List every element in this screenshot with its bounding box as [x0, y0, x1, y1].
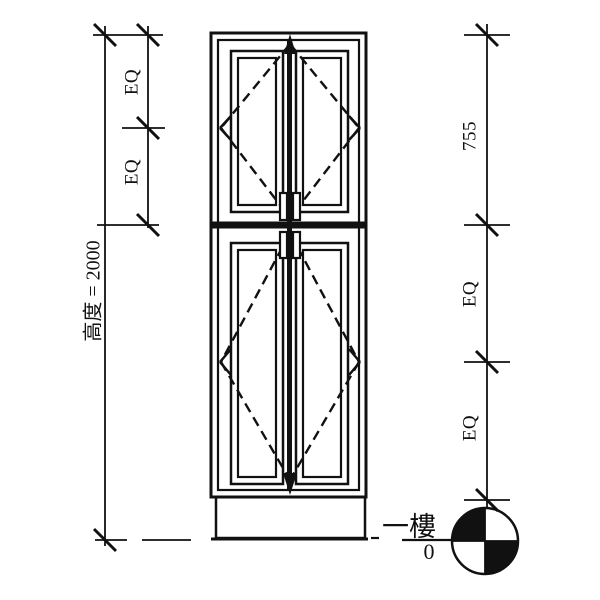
- level-marker: 一樓 0: [371, 508, 518, 574]
- right-dimension-group: 755 EQ EQ: [459, 24, 510, 511]
- cabinet-elevation-drawing: EQ EQ 高度 = 2000 755 EQ EQ: [0, 0, 600, 600]
- left-chevron-arrow: [220, 362, 231, 375]
- up-arrow-head: [284, 34, 296, 54]
- left-dimension-group: EQ EQ 高度 = 2000: [82, 24, 191, 551]
- left-chevron-arrow: [220, 349, 231, 362]
- lower-right-panel-inner: [303, 250, 341, 477]
- left-chevron-arrow: [220, 128, 231, 140]
- upper-left-door-handle: [280, 193, 287, 220]
- left-chevron-arrow: [220, 116, 231, 128]
- upper-right-door-handle: [293, 193, 300, 220]
- level-target-quadrant-bottomright: [485, 541, 518, 574]
- lower-left-door-handle: [280, 232, 287, 258]
- level-target-symbol: [452, 508, 518, 574]
- upper-left-panel-inner: [238, 58, 276, 205]
- floor-name-label: 一樓: [382, 512, 436, 542]
- lower-left-panel-inner: [238, 250, 276, 477]
- right-eq-middle-label: EQ: [459, 281, 480, 307]
- upper-right-panel-inner: [303, 58, 341, 205]
- level-target-quadrant-topleft: [452, 508, 485, 541]
- lower-right-door-handle: [293, 232, 300, 258]
- cabinet-base: [216, 497, 365, 538]
- right-eq-bottom-label: EQ: [459, 415, 480, 441]
- overall-height-label: 高度 = 2000: [82, 240, 105, 341]
- left-eq-upper-label: EQ: [121, 69, 142, 95]
- left-eq-lower-label: EQ: [121, 159, 142, 185]
- elevation-value-label: 0: [424, 539, 435, 564]
- right-dim-755-label: 755: [459, 121, 480, 151]
